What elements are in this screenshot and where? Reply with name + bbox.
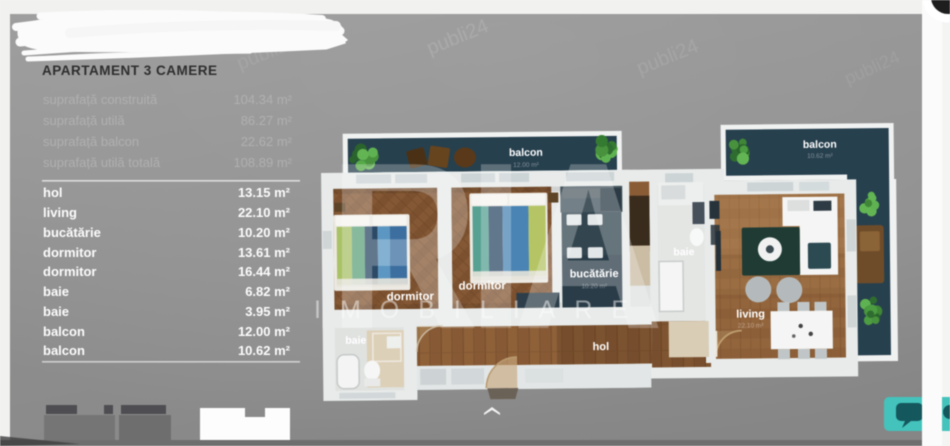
svg-text:balcon: balcon [43, 324, 85, 339]
svg-text:living: living [43, 205, 77, 220]
svg-text:APARTAMENT 3 CAMERE: APARTAMENT 3 CAMERE [42, 63, 218, 78]
svg-text:13.61 m²: 13.61 m² [238, 245, 291, 260]
svg-text:suprafață balcon: suprafață balcon [43, 134, 139, 149]
svg-text:suprafață utilă totală: suprafață utilă totală [43, 155, 161, 170]
svg-text:balcon: balcon [803, 139, 837, 151]
svg-text:RIA: RIA [328, 112, 659, 378]
svg-text:dormitor: dormitor [43, 245, 96, 260]
svg-text:dormitor: dormitor [43, 264, 96, 279]
svg-text:16.44 m²: 16.44 m² [238, 264, 291, 279]
svg-text:22.10 m²: 22.10 m² [738, 322, 765, 329]
svg-text:13.15 m²: 13.15 m² [238, 185, 291, 200]
svg-text:86.27 m²: 86.27 m² [241, 113, 293, 128]
svg-text:10.62 m²: 10.62 m² [238, 343, 291, 358]
svg-text:6.82 m²: 6.82 m² [245, 284, 290, 299]
svg-text:hol: hol [43, 185, 63, 200]
svg-text:living: living [736, 308, 765, 320]
svg-text:3.95 m²: 3.95 m² [245, 304, 290, 319]
svg-text:108.89 m²: 108.89 m² [233, 155, 292, 170]
svg-text:baie: baie [673, 246, 694, 258]
svg-text:baie: baie [43, 284, 69, 299]
svg-text:bucătărie: bucătărie [43, 225, 101, 240]
svg-text:suprafață utilă: suprafață utilă [43, 113, 125, 128]
svg-text:22.10 m²: 22.10 m² [238, 205, 291, 220]
svg-text:12.00 m²: 12.00 m² [238, 324, 291, 339]
svg-text:10.62 m²: 10.62 m² [807, 153, 834, 160]
svg-text:suprafață construită: suprafață construită [43, 92, 158, 107]
svg-text:22.62 m²: 22.62 m² [241, 134, 293, 149]
svg-text:IMOBILIARE: IMOBILIARE [314, 296, 647, 324]
svg-text:baie: baie [43, 304, 69, 319]
svg-text:10.20 m²: 10.20 m² [238, 225, 291, 240]
svg-text:104.34 m²: 104.34 m² [233, 92, 292, 107]
svg-text:balcon: balcon [43, 343, 85, 358]
